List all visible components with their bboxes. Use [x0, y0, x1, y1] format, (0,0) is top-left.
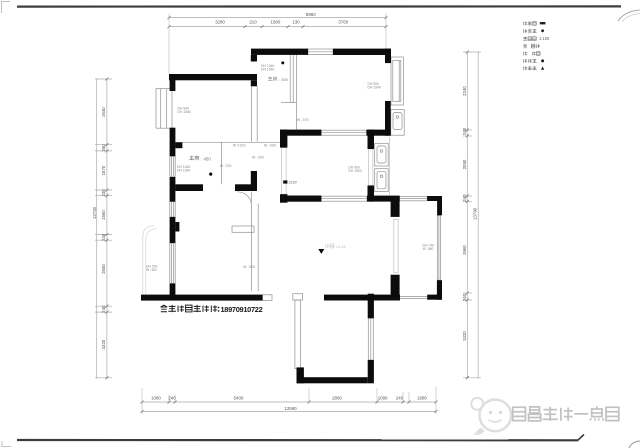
svg-text:W -330: W -330: [264, 144, 276, 148]
svg-text:1580: 1580: [271, 20, 281, 25]
svg-text:130: 130: [292, 20, 300, 25]
svg-text:2640: 2640: [101, 107, 106, 117]
svg-text:: 450: : 450: [201, 156, 211, 161]
svg-text:2120: 2120: [289, 181, 297, 185]
svg-text:240: 240: [462, 127, 467, 135]
svg-text:230: 230: [101, 189, 106, 197]
svg-text:240: 240: [396, 396, 404, 401]
svg-text:3960: 3960: [462, 245, 467, 255]
svg-text:240: 240: [101, 305, 106, 313]
svg-text:2050: 2050: [462, 159, 467, 169]
svg-text:W -360: W -360: [243, 265, 255, 269]
svg-text:W -360: W -360: [423, 247, 434, 251]
svg-text:250: 250: [101, 144, 106, 152]
svg-text:12720: 12720: [92, 206, 97, 219]
svg-text:3320: 3320: [462, 331, 467, 341]
svg-text:12590: 12590: [284, 406, 297, 411]
svg-text:3280: 3280: [215, 20, 225, 25]
svg-text:: 300: : 300: [279, 77, 289, 82]
svg-text:1:100: 1:100: [539, 36, 550, 41]
svg-text:5400: 5400: [234, 396, 244, 401]
svg-text:DH 1540: DH 1540: [261, 68, 274, 72]
svg-text:DH 1540: DH 1540: [368, 85, 381, 89]
svg-text:DH 1560: DH 1560: [178, 110, 191, 114]
svg-text:8960: 8960: [306, 12, 316, 17]
svg-text:W -370: W -370: [297, 118, 309, 122]
svg-text:W -700: W -700: [220, 164, 232, 168]
svg-text:240: 240: [462, 293, 467, 301]
svg-text:240: 240: [462, 194, 467, 202]
svg-text:DH 1540: DH 1540: [177, 168, 190, 172]
svg-text:3320: 3320: [101, 339, 106, 349]
svg-text:2860: 2860: [332, 396, 342, 401]
svg-text:W -300: W -300: [146, 268, 157, 272]
svg-text:1560: 1560: [101, 210, 106, 220]
svg-text:3760: 3760: [338, 20, 348, 25]
svg-text:18970910722: 18970910722: [221, 305, 263, 314]
svg-text:210: 210: [249, 20, 257, 25]
svg-text:2240: 2240: [462, 86, 467, 96]
svg-text:DH 1500: DH 1500: [348, 169, 361, 173]
svg-text:W -330: W -330: [252, 155, 264, 159]
svg-text:13790: 13790: [473, 207, 478, 220]
svg-text:15.85: 15.85: [336, 244, 347, 249]
svg-text:1080: 1080: [151, 396, 161, 401]
svg-text:230: 230: [101, 233, 106, 241]
svg-text:1680: 1680: [417, 396, 427, 401]
svg-text:240: 240: [168, 396, 176, 401]
svg-text:1090: 1090: [378, 396, 388, 401]
svg-text:W 2120: W 2120: [233, 144, 246, 148]
svg-text:1570: 1570: [101, 165, 106, 175]
svg-text:2650: 2650: [101, 264, 106, 274]
